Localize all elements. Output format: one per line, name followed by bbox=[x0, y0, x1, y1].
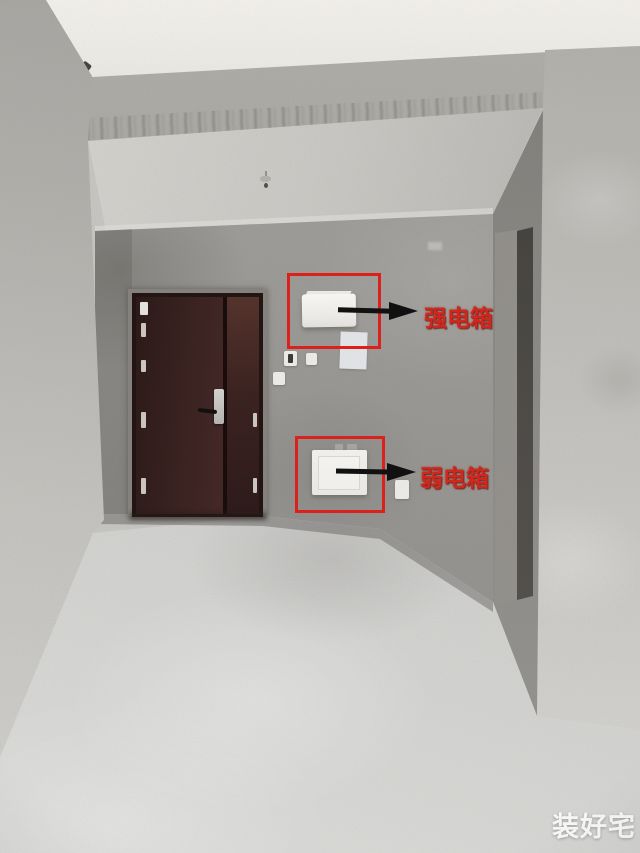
door-hinge-mark bbox=[140, 302, 148, 315]
annotation-arrow-weak bbox=[336, 469, 388, 475]
wall-socket bbox=[395, 480, 409, 499]
door-hinge-mark bbox=[141, 323, 146, 337]
wall-socket bbox=[306, 353, 317, 365]
wall-switch-mark bbox=[288, 354, 293, 363]
annotation-arrowhead-strong bbox=[389, 302, 418, 320]
weak-electric-box-label: 弱电箱 bbox=[420, 459, 489, 493]
watermark: 装好宅 bbox=[552, 805, 636, 844]
door-hinge-mark bbox=[253, 413, 257, 427]
annotated-room-photo: 强电箱 弱电箱 装好宅 bbox=[0, 0, 640, 853]
door-threshold-shadow bbox=[130, 512, 266, 520]
highlight-box-weak bbox=[295, 436, 385, 513]
door-hinge-mark bbox=[141, 478, 146, 494]
entry-door-left-leaf bbox=[136, 297, 223, 514]
ceiling-light-fixture bbox=[260, 176, 271, 182]
ceiling-light-bulb bbox=[264, 183, 268, 188]
wall-bright-patch bbox=[428, 242, 442, 250]
annotation-arrowhead-weak bbox=[387, 463, 416, 481]
door-hinge-mark bbox=[141, 360, 146, 372]
door-handle-plate bbox=[214, 389, 224, 424]
door-hinge-mark bbox=[141, 412, 146, 428]
door-hinge-mark bbox=[253, 478, 257, 493]
wall-socket bbox=[273, 372, 285, 385]
strong-electric-box-label: 强电箱 bbox=[424, 299, 493, 333]
